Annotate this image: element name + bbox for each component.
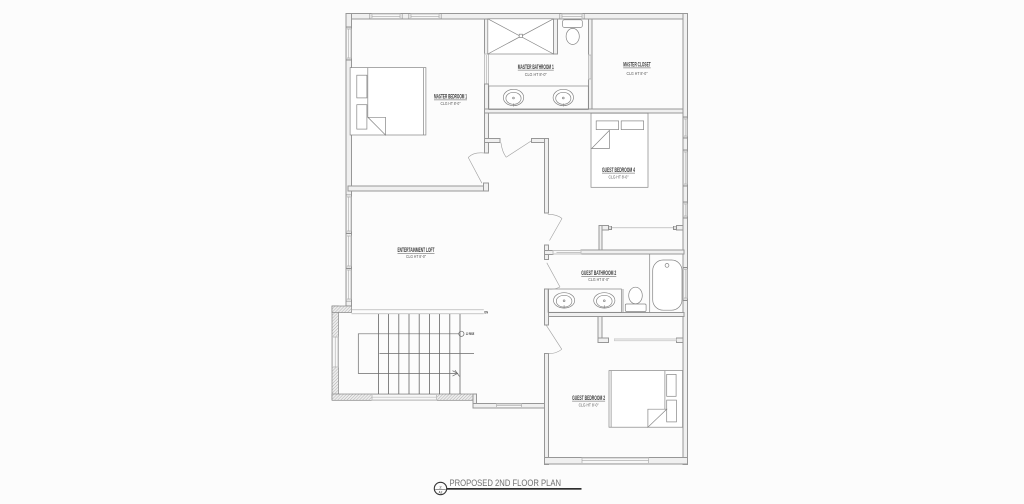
svg-text:CLG HT 8'-0": CLG HT 8'-0"	[627, 71, 648, 76]
svg-text:CLG HT 8'-0": CLG HT 8'-0"	[609, 175, 629, 180]
svg-text:MASTER BATHROOM 1: MASTER BATHROOM 1	[518, 64, 554, 71]
svg-text:PROPOSED 2ND FLOOR PLAN: PROPOSED 2ND FLOOR PLAN	[450, 478, 562, 488]
svg-text:GUEST BEDROOM 2: GUEST BEDROOM 2	[572, 395, 605, 402]
svg-text:GUEST BEDROOM 4: GUEST BEDROOM 4	[602, 167, 635, 174]
svg-text:MASTER BEDROOM 1: MASTER BEDROOM 1	[434, 94, 467, 101]
svg-text:12 RISE: 12 RISE	[466, 332, 475, 336]
svg-text:CLG HT 8'-0": CLG HT 8'-0"	[525, 72, 547, 77]
svg-text:CLG HT 8'-0": CLG HT 8'-0"	[441, 101, 461, 106]
svg-text:DN: DN	[484, 311, 488, 315]
svg-text:MASTER CLOSET: MASTER CLOSET	[623, 62, 651, 69]
svg-text:CLG HT 8'-0": CLG HT 8'-0"	[406, 254, 426, 259]
svg-text:ENTERTAINMENT LOFT: ENTERTAINMENT LOFT	[398, 247, 435, 254]
svg-text:CLG HT 8'-0": CLG HT 8'-0"	[588, 277, 609, 282]
svg-text:CLG HT 8'-0": CLG HT 8'-0"	[579, 402, 599, 407]
svg-text:A2: A2	[439, 490, 443, 494]
